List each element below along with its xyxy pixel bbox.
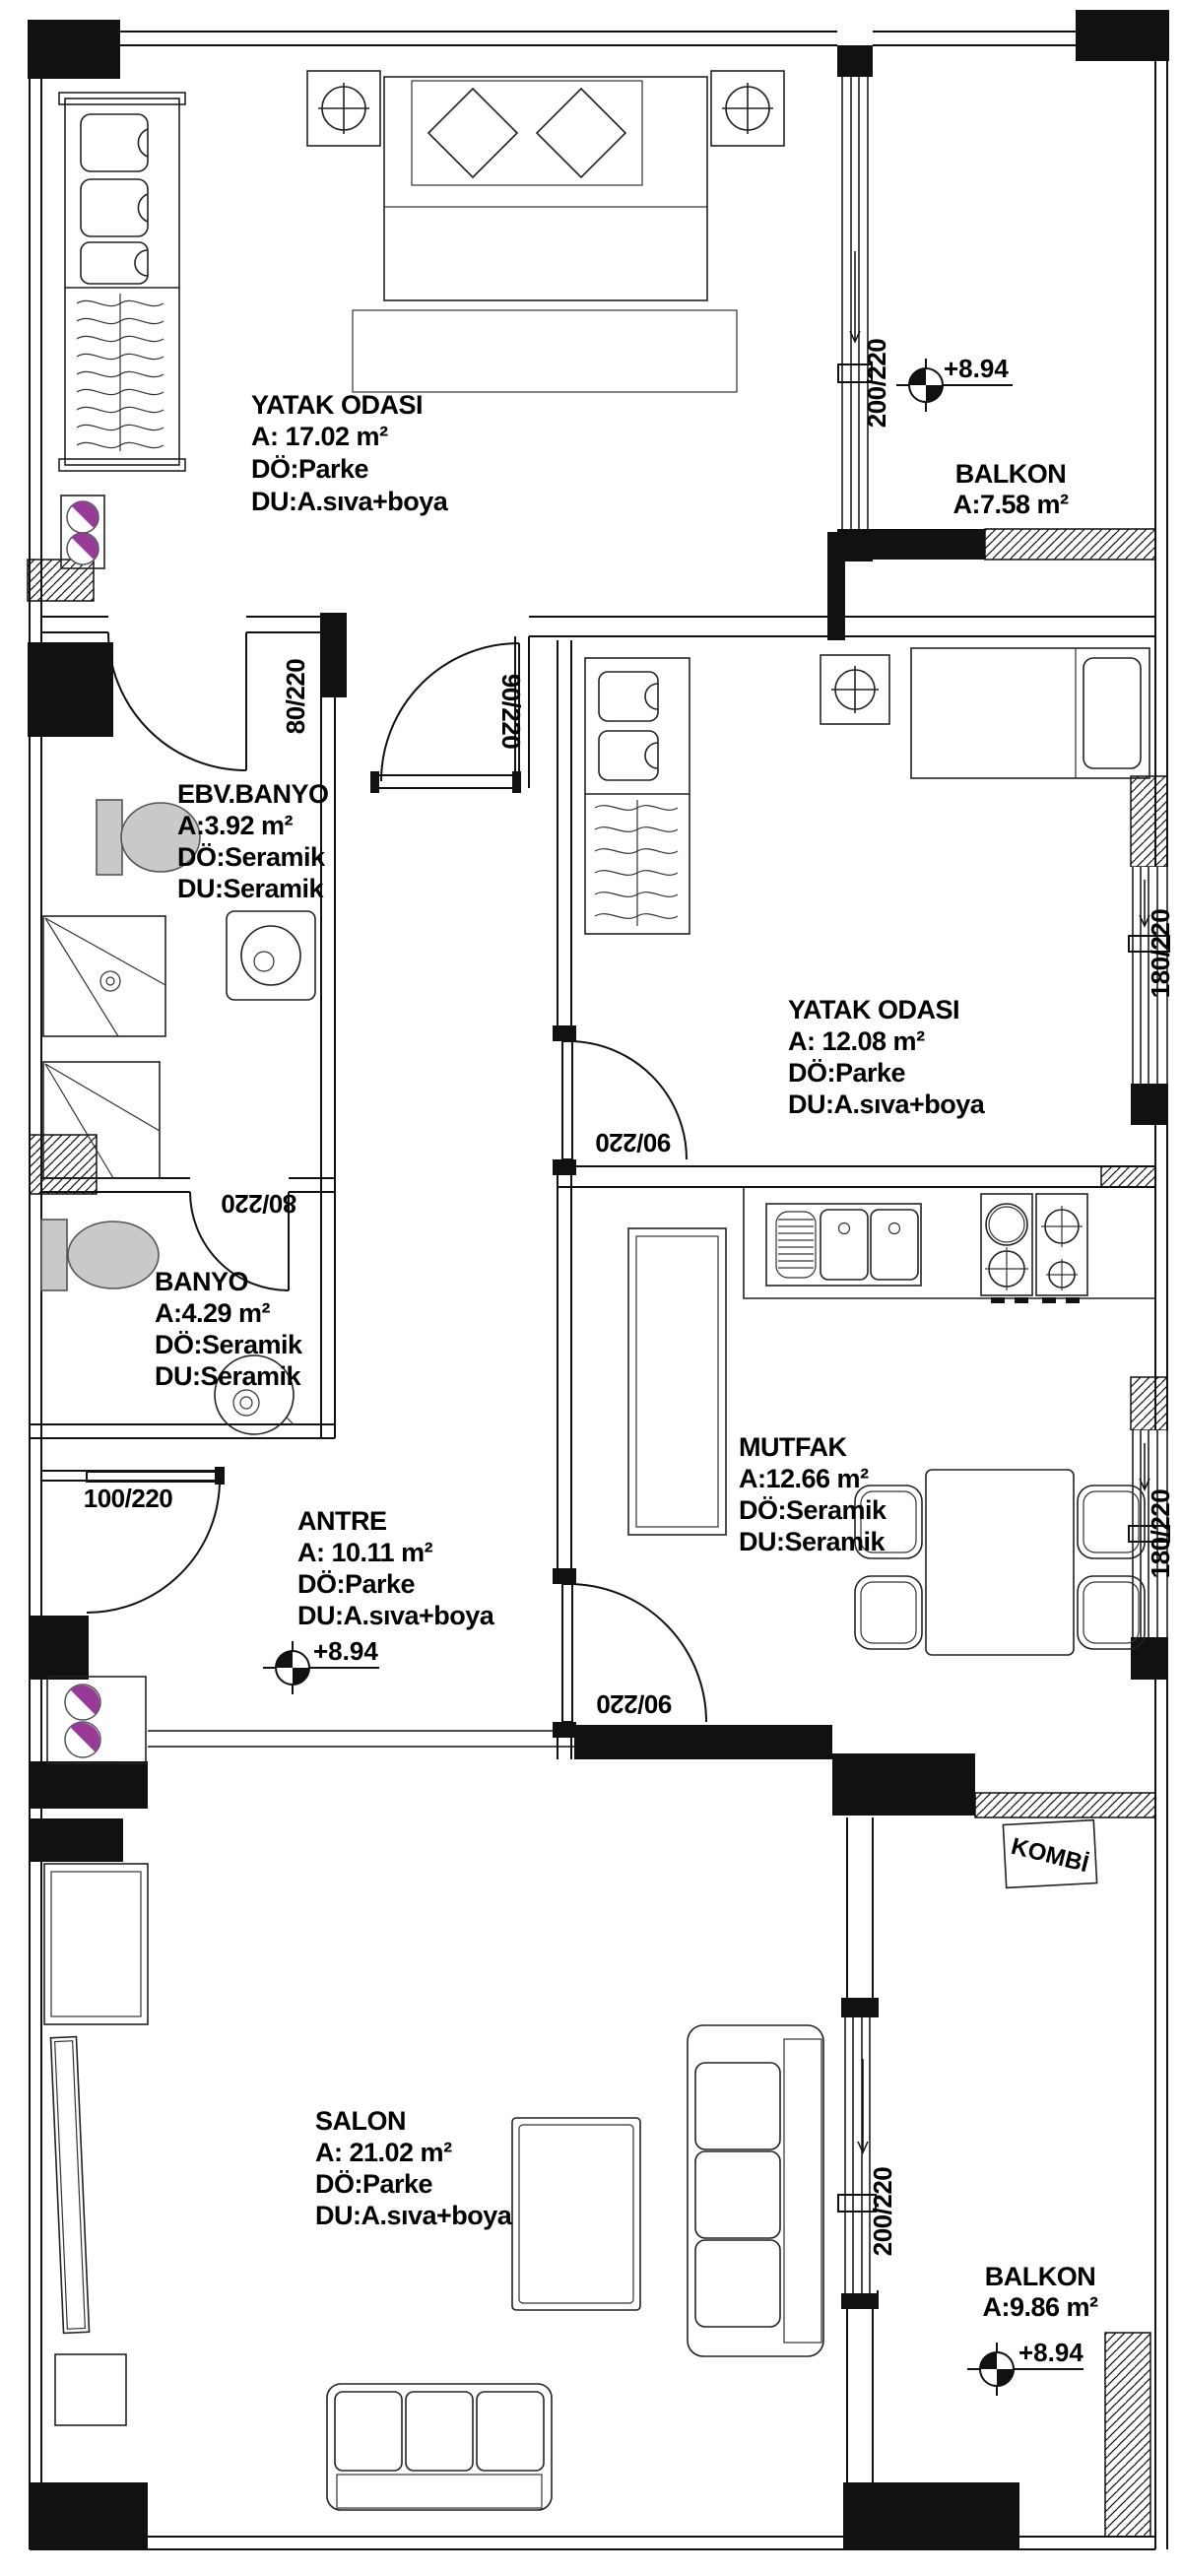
floor-plan-page: KOMBİ YATAK ODASI A: 17.02 m² DÖ:Parke D…	[0, 0, 1182, 2576]
room-label-antre: ANTRE A: 10.11 m² DÖ:Parke DU:A.sıva+boy…	[297, 1506, 495, 1630]
door-label-90-220: 90/220	[496, 674, 526, 750]
room-name: BANYO	[155, 1267, 248, 1296]
room-name: YATAK ODASI	[788, 995, 959, 1024]
dining-chair	[855, 1486, 1145, 1649]
window-label-180-220: 180/220	[1146, 1489, 1175, 1579]
room-area: A:9.86 m²	[982, 2292, 1098, 2322]
pillow-icon	[428, 89, 625, 177]
room-area: A: 12.08 m²	[788, 1026, 925, 1056]
elevation-label: +8.94	[1018, 2338, 1083, 2367]
hanger-icons	[77, 294, 164, 451]
elevation-label: +8.94	[944, 354, 1009, 383]
kitchen-sink	[766, 1204, 921, 1286]
room-floor: DÖ:Seramik	[739, 1495, 887, 1525]
room-label-bedroom1: YATAK ODASI A: 17.02 m² DÖ:Parke DU:A.sı…	[251, 390, 449, 516]
bed-rug	[353, 310, 737, 392]
room-floor: DÖ:Parke	[251, 454, 369, 484]
kitchen-counter	[628, 1187, 1155, 1535]
elevation-label: +8.94	[313, 1636, 378, 1666]
window-balcony1	[836, 77, 874, 529]
room-wall: DU:Seramik	[739, 1527, 886, 1556]
room-label-bedroom2: YATAK ODASI A: 12.08 m² DÖ:Parke DU:A.sı…	[788, 995, 986, 1119]
floor-plan-drawing: KOMBİ YATAK ODASI A: 17.02 m² DÖ:Parke D…	[0, 0, 1182, 2576]
shirt-icon	[81, 114, 148, 284]
salon-sofa-bottom	[327, 2384, 552, 2510]
ebv-banyo-washer	[227, 911, 315, 1000]
elevation-markers: +8.94 +8.94 +8.94	[263, 354, 1083, 2396]
room-area: A:7.58 m²	[952, 490, 1069, 519]
room-name: ANTRE	[297, 1506, 387, 1536]
banyo-toilet	[41, 1220, 159, 1290]
bedroom1-bed	[353, 77, 737, 392]
dining-set	[855, 1470, 1145, 1655]
room-wall: DU:Seramik	[177, 874, 325, 903]
room-wall: DU:A.sıva+boya	[251, 487, 449, 516]
room-floor: DÖ:Seramik	[155, 1330, 303, 1359]
room-area: A: 17.02 m²	[251, 422, 388, 451]
door-label-100-220: 100/220	[84, 1484, 173, 1513]
room-area: A:12.66 m²	[739, 1464, 869, 1493]
room-name: YATAK ODASI	[251, 390, 423, 420]
door-label-90-220: 90/220	[597, 1689, 673, 1719]
room-name: BALKON	[955, 459, 1067, 489]
salon-coffee-table	[512, 2118, 640, 2310]
opening-labels: 80/220 90/220 90/220 80/220 100/220 90/2…	[84, 339, 1175, 2257]
room-wall: DU:A.sıva+boya	[315, 2201, 513, 2230]
room-label-balcony2: BALKON A:9.86 m²	[982, 2262, 1098, 2322]
room-name: MUTFAK	[739, 1432, 847, 1462]
room-wall: DU:A.sıva+boya	[788, 1090, 986, 1119]
room-area: A:4.29 m²	[155, 1298, 271, 1328]
room-label-salon: SALON A: 21.02 m² DÖ:Parke DU:A.sıva+boy…	[315, 2106, 513, 2230]
window-label-180-220: 180/220	[1146, 909, 1175, 999]
room-name: BALKON	[985, 2262, 1096, 2291]
room-label-balcony1: BALKON A:7.58 m²	[952, 459, 1069, 519]
room-floor: DÖ:Seramik	[177, 842, 326, 872]
kombi-boiler: KOMBİ	[1003, 1820, 1096, 1888]
bedroom2-bed	[911, 648, 1149, 778]
room-label-banyo: BANYO A:4.29 m² DÖ:Seramik DU:Seramik	[155, 1267, 303, 1391]
kombi-label: KOMBİ	[1009, 1833, 1091, 1879]
salon-side-table	[55, 2354, 126, 2425]
antre-slipper-box	[47, 1677, 146, 1763]
room-name: EBV.BANYO	[177, 779, 329, 809]
door-label-80-220: 80/220	[281, 659, 310, 735]
room-floor: DÖ:Parke	[297, 1569, 416, 1599]
bedroom1-wardrobe	[59, 93, 185, 471]
room-floor: DÖ:Parke	[788, 1058, 906, 1088]
door-ebv-banyo-80	[108, 632, 246, 770]
salon-sideboard	[50, 2037, 89, 2334]
room-name: SALON	[315, 2106, 406, 2136]
shirt-icon	[599, 672, 658, 780]
room-wall: DU:A.sıva+boya	[297, 1601, 495, 1630]
door-label-80-220: 80/220	[222, 1189, 297, 1219]
bedroom2-wardrobe	[585, 658, 689, 934]
window-label-200-220: 200/220	[862, 339, 891, 429]
room-area: A:3.92 m²	[177, 811, 294, 840]
bedroom1-nightstands	[307, 71, 784, 146]
room-area: A: 21.02 m²	[315, 2138, 452, 2167]
kitchen-tall-unit	[628, 1228, 726, 1535]
bedroom1-slipper-box	[61, 495, 104, 568]
salon-sofa-right	[688, 2025, 823, 2356]
interior-walls	[30, 617, 1155, 2537]
salon-closet	[44, 1864, 148, 2024]
room-wall: DU:Seramik	[155, 1361, 302, 1391]
door-label-90-220: 90/220	[596, 1128, 672, 1157]
window-label-200-220: 200/220	[868, 2167, 897, 2257]
open-threshold-salon	[148, 1731, 574, 1747]
room-floor: DÖ:Parke	[315, 2169, 433, 2199]
ebv-banyo-shower	[43, 916, 165, 1036]
hanger-icons	[595, 800, 678, 926]
bedroom2-nightstand	[821, 655, 889, 724]
room-area: A: 10.11 m²	[297, 1538, 433, 1567]
kitchen-stove	[981, 1194, 1087, 1303]
